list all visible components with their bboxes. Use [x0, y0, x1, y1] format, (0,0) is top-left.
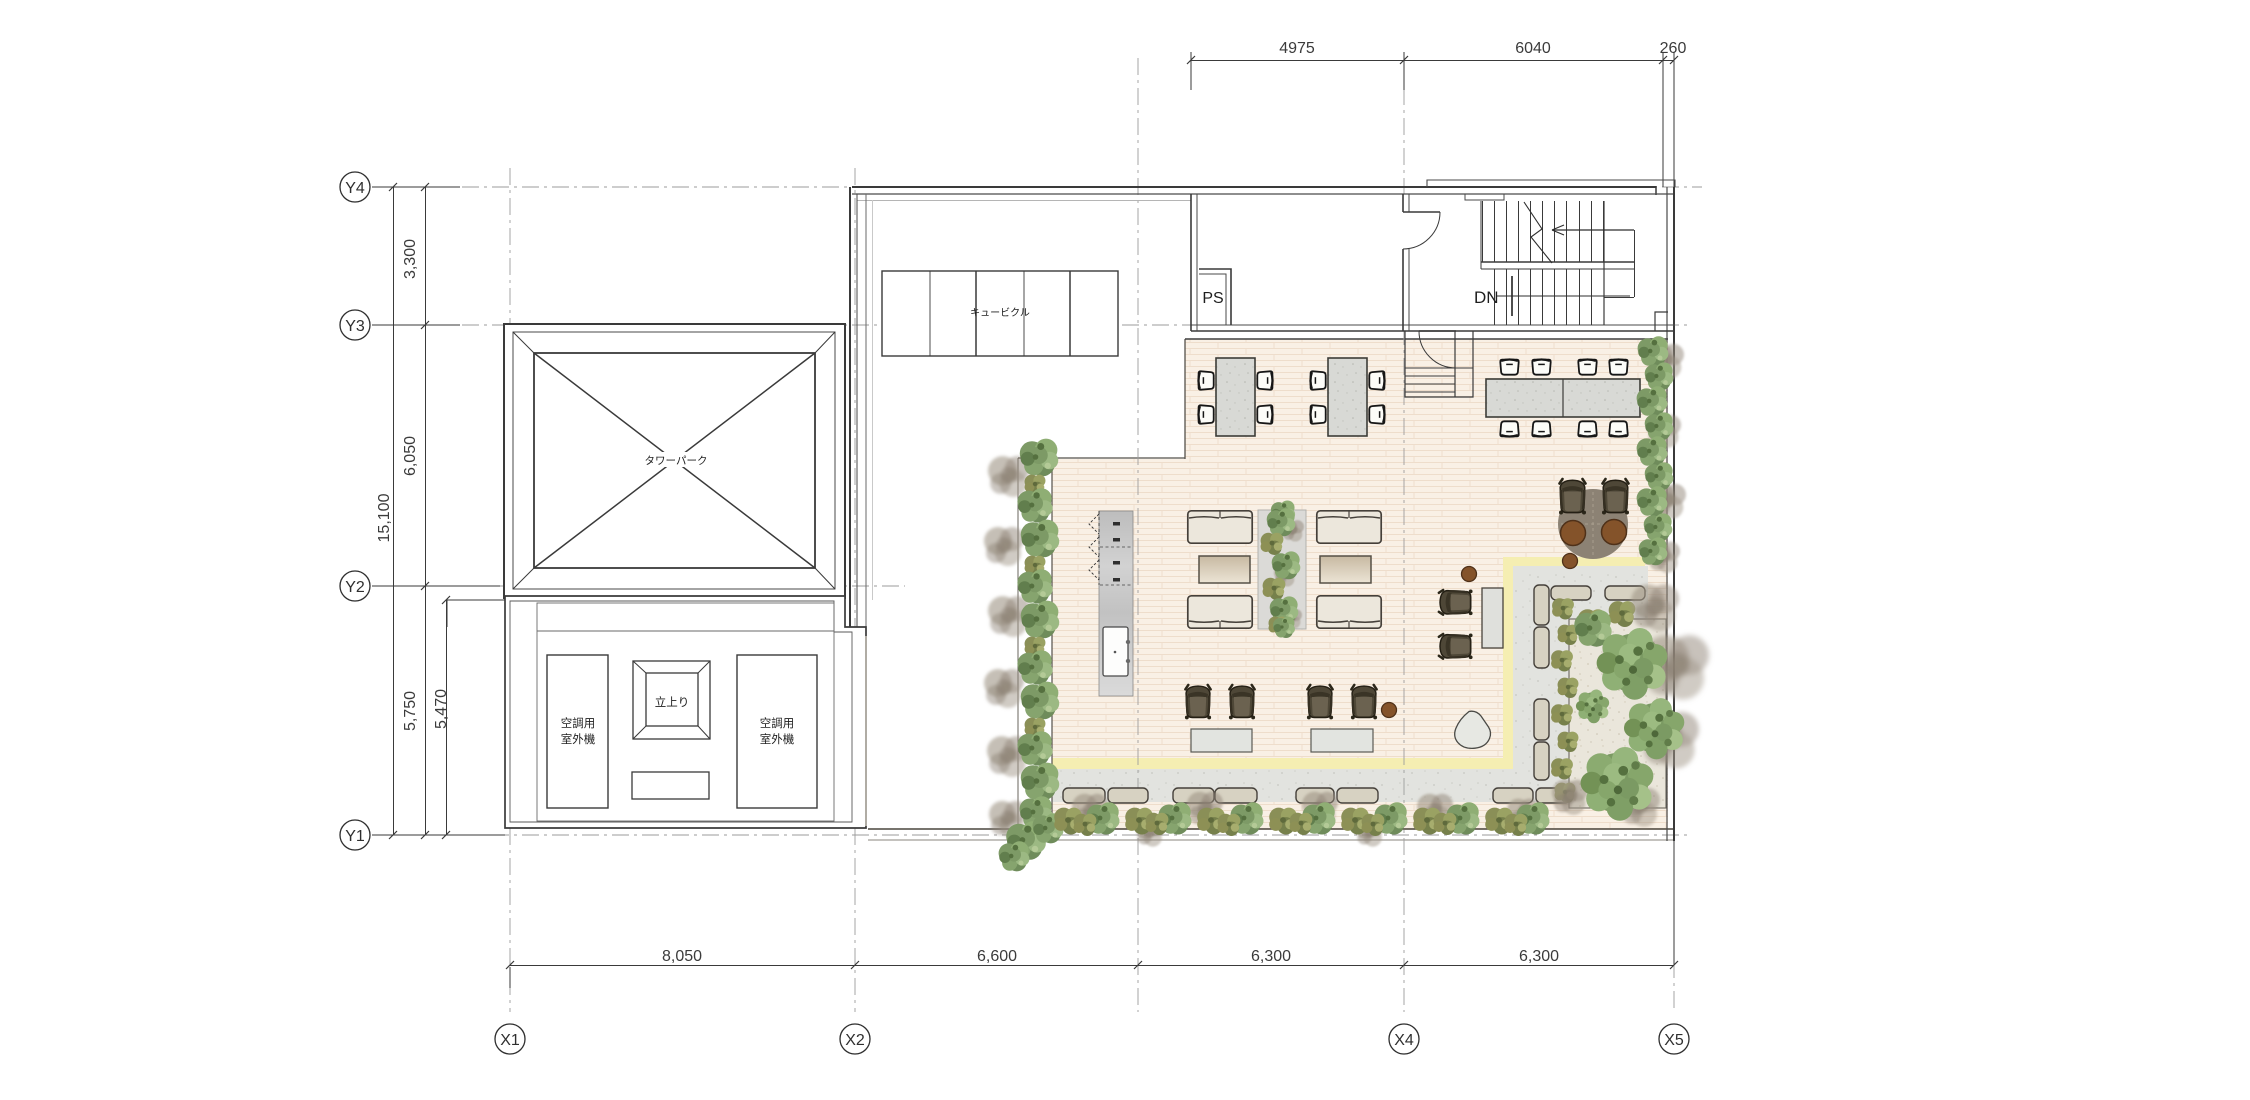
svg-text:Y1: Y1	[345, 828, 365, 845]
svg-text:Y2: Y2	[345, 579, 365, 596]
svg-text:15,100: 15,100	[376, 493, 393, 542]
svg-text:3,300: 3,300	[402, 239, 419, 279]
svg-text:キュービクル: キュービクル	[970, 307, 1030, 319]
svg-text:タワーパーク: タワーパーク	[645, 455, 708, 467]
svg-text:5,750: 5,750	[402, 691, 419, 731]
svg-text:Y3: Y3	[345, 318, 365, 335]
svg-text:6,600: 6,600	[977, 948, 1017, 965]
svg-text:立上り: 立上り	[655, 695, 690, 709]
svg-text:6,050: 6,050	[402, 436, 419, 476]
svg-text:空調用: 空調用	[760, 716, 795, 730]
svg-text:X4: X4	[1394, 1032, 1414, 1049]
svg-text:4975: 4975	[1279, 40, 1315, 57]
svg-text:6,300: 6,300	[1519, 948, 1559, 965]
svg-text:DN: DN	[1474, 288, 1499, 307]
svg-text:空調用: 空調用	[561, 716, 596, 730]
svg-text:室外機: 室外機	[561, 732, 596, 746]
svg-text:X1: X1	[500, 1032, 520, 1049]
svg-text:6,300: 6,300	[1251, 948, 1291, 965]
svg-text:PS: PS	[1202, 290, 1223, 307]
svg-text:6040: 6040	[1515, 40, 1551, 57]
svg-text:室外機: 室外機	[760, 732, 795, 746]
svg-text:8,050: 8,050	[662, 948, 702, 965]
svg-text:Y4: Y4	[345, 180, 365, 197]
svg-text:X5: X5	[1664, 1032, 1684, 1049]
svg-text:X2: X2	[845, 1032, 865, 1049]
svg-text:5,470: 5,470	[433, 689, 450, 729]
svg-text:260: 260	[1660, 40, 1687, 57]
